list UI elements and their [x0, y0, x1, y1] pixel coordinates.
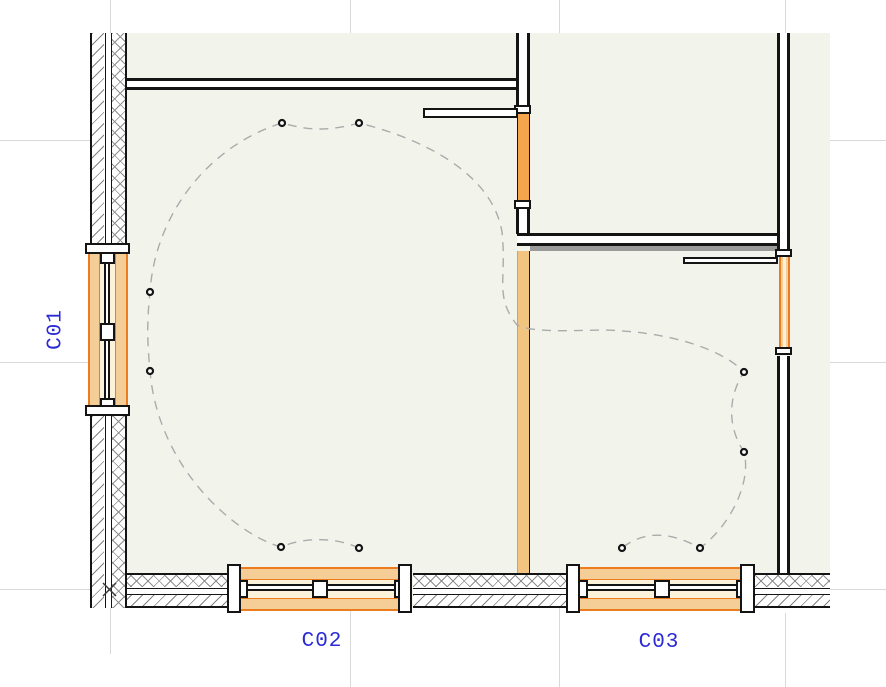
- wiring-lights-overlay: [0, 0, 886, 687]
- ceiling-light[interactable]: [147, 368, 153, 374]
- ceiling-light[interactable]: [697, 545, 703, 551]
- ceiling-light[interactable]: [356, 545, 362, 551]
- wall-corner-x-marker: [103, 583, 116, 596]
- ceiling-light[interactable]: [741, 369, 747, 375]
- ceiling-light[interactable]: [741, 449, 747, 455]
- ceiling-light[interactable]: [279, 120, 285, 126]
- ceiling-light[interactable]: [147, 289, 153, 295]
- ceiling-light[interactable]: [278, 544, 284, 550]
- ceiling-light[interactable]: [356, 120, 362, 126]
- label-window-C03[interactable]: C03: [619, 631, 699, 654]
- floor-plan-canvas: C01 C02 C03: [0, 0, 886, 687]
- label-window-C01[interactable]: C01: [45, 290, 68, 370]
- ceiling-light[interactable]: [619, 545, 625, 551]
- label-window-C02[interactable]: C02: [282, 630, 362, 653]
- wiring-dashed-path[interactable]: [148, 123, 746, 548]
